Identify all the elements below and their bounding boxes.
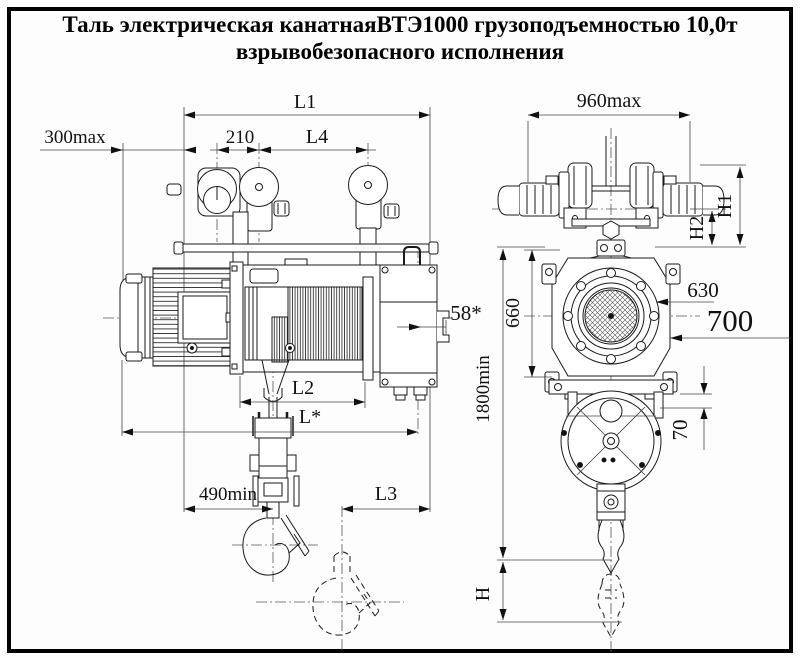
dim-label-l1: L1	[294, 91, 316, 113]
dim-label-70: 70	[668, 420, 692, 441]
hook-lowered-side	[313, 552, 379, 635]
dim-label-l4: L4	[306, 126, 328, 148]
spacer-bar	[180, 244, 432, 252]
dim-label-700: 700	[707, 303, 754, 338]
hook-block-front	[561, 391, 663, 573]
rope-drum-housing	[243, 259, 380, 380]
trolley-wheel	[240, 168, 279, 207]
trolley-side	[167, 166, 438, 266]
drive-motor	[519, 183, 559, 216]
dim-label-210: 210	[226, 127, 255, 148]
hook	[243, 518, 289, 575]
dim-label-l-star: L*	[299, 406, 321, 428]
dim-label-490min: 490min	[199, 484, 258, 505]
motor-flange	[230, 262, 243, 374]
rope-guide	[272, 317, 288, 362]
dim-label-l2: L2	[292, 377, 314, 399]
dim-label-h1: H1	[714, 194, 736, 218]
hoist-motor	[120, 262, 243, 374]
front-view: 960max H1 H2 660 630 700	[472, 90, 791, 655]
dim-label-1800min: 1800min	[473, 355, 494, 423]
dim-label-h2: H2	[686, 216, 708, 240]
trolley-wheel	[349, 166, 388, 205]
dim-label-960max: 960max	[577, 90, 641, 112]
suspension-nut	[603, 221, 619, 239]
dim-label-58: 58*	[450, 301, 482, 325]
drawing-sheet: Таль электрическая канатнаяВТЭ1000 грузо…	[0, 0, 800, 660]
dim-label-l3: L3	[375, 483, 397, 505]
wheel	[630, 163, 654, 208]
control-box	[380, 247, 449, 400]
dim-label-630: 630	[687, 278, 719, 302]
drive-motor	[663, 183, 703, 216]
rope-wraps	[288, 287, 362, 360]
dim-label-300max: 300max	[44, 127, 106, 148]
dim-label-h: H	[472, 587, 494, 601]
wheel	[568, 163, 592, 208]
side-view: L1 300max 210 L4 58* L2	[40, 91, 482, 652]
technical-drawing: L1 300max 210 L4 58* L2	[0, 0, 800, 660]
dim-label-660: 660	[502, 298, 524, 328]
